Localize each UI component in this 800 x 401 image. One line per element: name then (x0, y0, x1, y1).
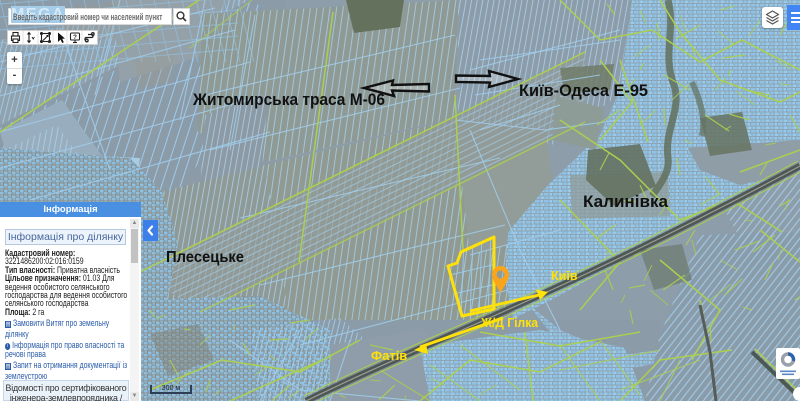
svg-text:Калинівка: Калинівка (583, 192, 669, 211)
svg-text:Житомирська траса М-06: Житомирська траса М-06 (192, 91, 385, 109)
svg-text:Київ-Одеса Е-95: Київ-Одеса Е-95 (519, 82, 648, 100)
svg-text:?: ? (73, 34, 77, 41)
svg-text:Київ: Київ (551, 269, 578, 283)
svg-text:Плесецьке: Плесецьке (166, 249, 244, 266)
svg-text:Фатів: Фатів (371, 348, 407, 363)
